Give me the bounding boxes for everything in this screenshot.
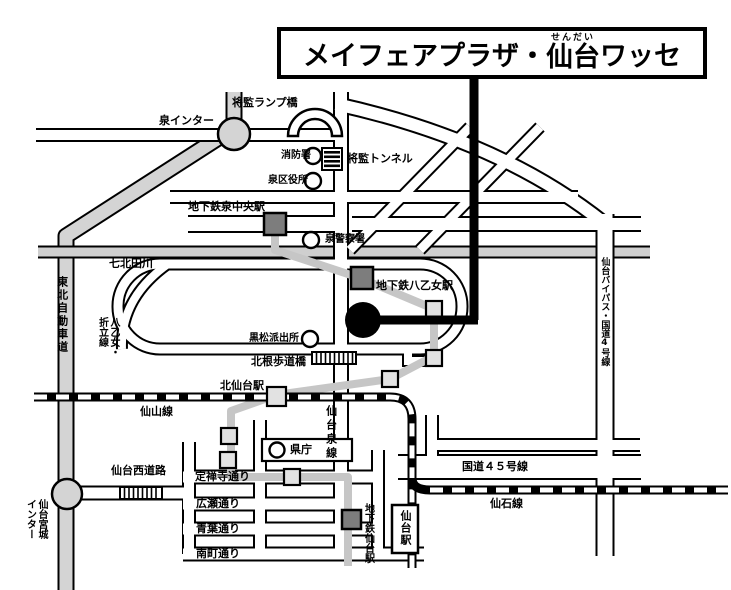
destination-dot <box>345 302 381 338</box>
label-hirose-street: 広瀬通り <box>196 498 240 510</box>
label-sendai-station: 仙台駅 <box>397 510 413 546</box>
label-izumi-interchange: 泉インター <box>159 115 214 127</box>
label-kuromatsu-police-box: 黒松派出所 <box>249 333 299 344</box>
label-ward-office: 泉区役所 <box>268 175 308 186</box>
tohoku-expressway-road <box>66 92 234 590</box>
station-square <box>220 452 236 468</box>
label-shokan-tunnel: 将監トンネル <box>347 153 413 165</box>
label-fire-station: 消防署 <box>281 150 311 161</box>
route-map: メイフェアプラザ・仙台せんだいワッセ 将監ランプ橋 泉インター 消防署 将監トン… <box>0 0 731 590</box>
tunnel-icon <box>322 148 342 170</box>
subway-sendai-station-square <box>342 510 361 529</box>
label-minamimachi-street: 南町通り <box>196 548 240 560</box>
station-square <box>426 301 442 317</box>
station-square <box>426 350 442 366</box>
title-box: メイフェアプラザ・仙台せんだいワッセ <box>277 27 707 79</box>
west-road-tunnel-icon <box>120 487 162 499</box>
yaotome-station-square <box>351 267 373 289</box>
label-sendai-izumi-line: 仙台泉線 <box>324 405 337 461</box>
label-shokan-ramp-bridge: 将監ランプ橋 <box>232 97 298 109</box>
label-nanakita-river: 七北田川 <box>109 258 153 270</box>
prefectural-office-circle <box>270 443 285 458</box>
label-sendai-west-road: 仙台西道路 <box>111 465 166 477</box>
footbridge-icon <box>312 352 356 364</box>
izumi-interchange-circle <box>218 118 250 150</box>
izumi-chuo-station-square <box>264 213 286 235</box>
label-izumi-chuo-station: 地下鉄泉中央駅 <box>188 201 265 213</box>
kita-sendai-station-square <box>267 387 286 406</box>
label-sendai-miyagi-interchange: 仙台宮城 インター <box>24 499 47 539</box>
title-part2: ワッセ <box>600 34 681 73</box>
label-kitane-footbridge: 北根歩道橋 <box>251 356 306 368</box>
title-ruby: 仙台せんだい <box>546 33 600 74</box>
title-part1: メイフェアプラザ・ <box>303 34 546 73</box>
label-subway-sendai-station: 地下鉄仙台駅 <box>362 503 374 563</box>
label-senzan-line: 仙山線 <box>140 406 173 418</box>
label-aoba-street: 青葉通り <box>196 523 240 535</box>
label-yaotome-station: 地下鉄八乙女駅 <box>376 280 453 292</box>
station-square <box>284 469 300 485</box>
label-tohoku-expressway: 東北自動車道 <box>55 276 68 354</box>
station-square <box>382 371 398 387</box>
label-prefectural-office: 県庁 <box>290 444 312 456</box>
label-senseki-line: 仙石線 <box>490 498 523 510</box>
label-yaotome-oritate-line: 八乙女・ 折立線 <box>96 317 119 357</box>
label-izumi-police: 泉警察署 <box>325 234 365 245</box>
police-station-circle <box>303 232 319 248</box>
sendai-miyagi-interchange-circle <box>52 479 82 509</box>
station-square <box>221 428 237 444</box>
label-jozenji-street: 定禅寺通り <box>195 471 250 483</box>
label-route-45: 国道４５号線 <box>462 461 528 473</box>
map-canvas <box>0 0 731 590</box>
label-sendai-bypass-route4: 仙台バイパス・国道4号線 <box>599 257 609 366</box>
label-kita-sendai-station: 北仙台駅 <box>220 380 264 392</box>
police-box-circle <box>302 331 318 347</box>
